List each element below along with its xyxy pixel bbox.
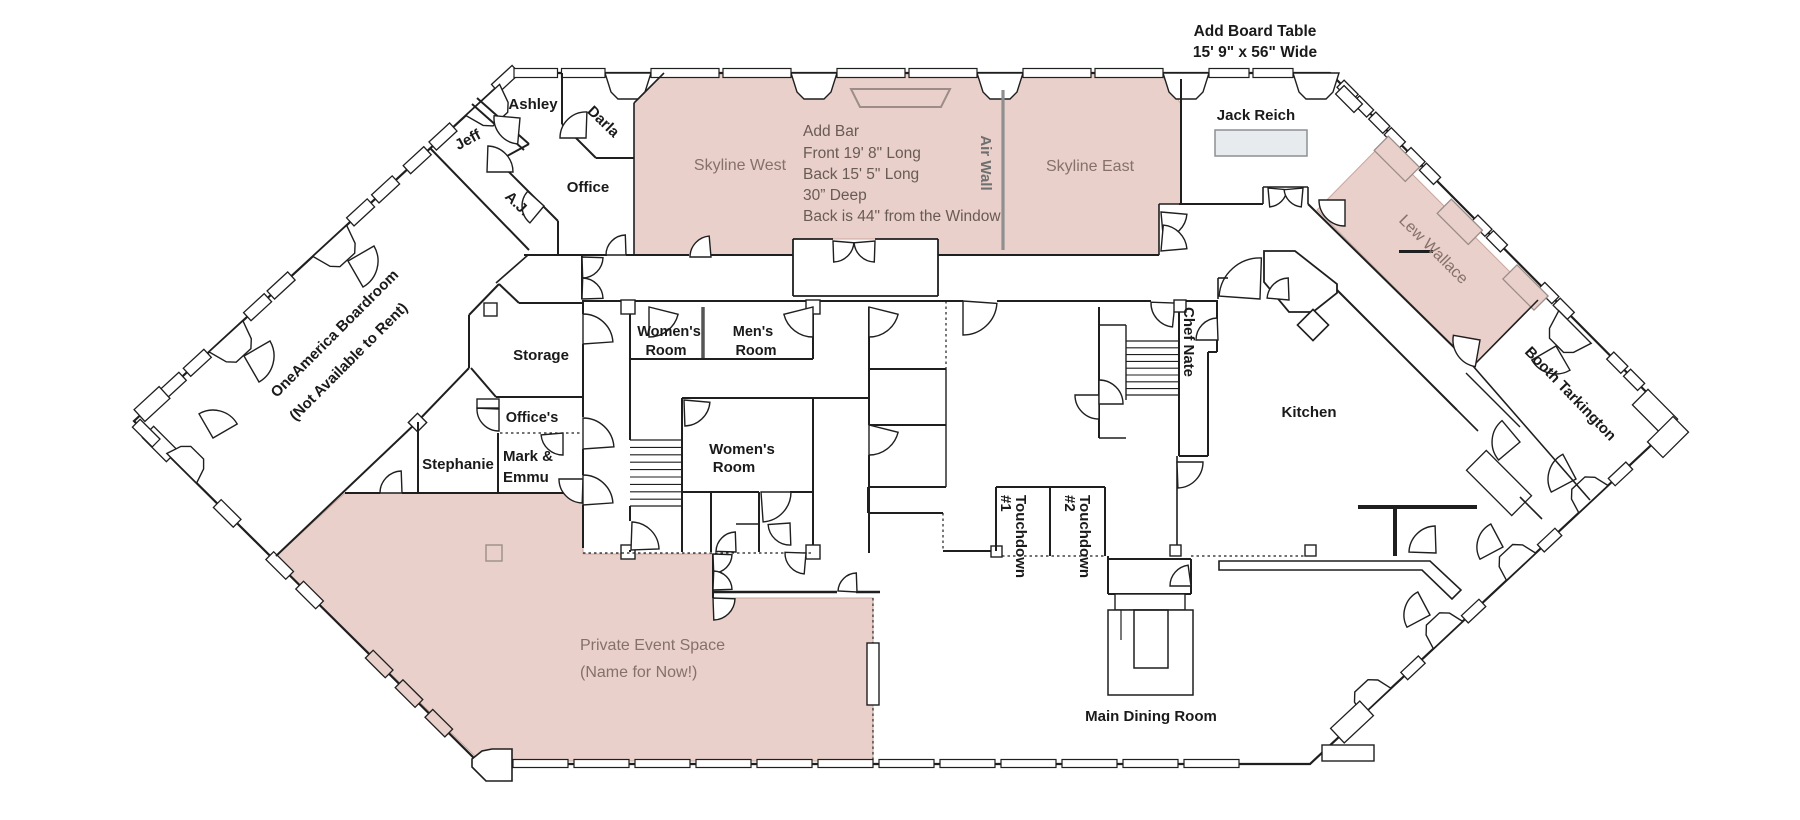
svg-text:Women's: Women's: [709, 441, 775, 458]
svg-text:Office's: Office's: [506, 410, 559, 426]
svg-text:Air Wall: Air Wall: [977, 135, 994, 190]
svg-text:Emmu: Emmu: [503, 469, 549, 486]
svg-text:Add Board Table: Add Board Table: [1194, 23, 1317, 40]
svg-text:15' 9" x 56" Wide: 15' 9" x 56" Wide: [1193, 44, 1318, 61]
svg-text:Women's: Women's: [637, 324, 701, 340]
svg-text:#1: #1: [997, 495, 1014, 512]
svg-text:#2: #2: [1061, 495, 1078, 512]
svg-text:Men's: Men's: [733, 324, 774, 340]
svg-text:Ashley: Ashley: [508, 96, 558, 113]
svg-text:Kitchen: Kitchen: [1281, 404, 1336, 421]
svg-text:Stephanie: Stephanie: [422, 456, 494, 473]
svg-text:Add Bar: Add Bar: [803, 123, 859, 140]
svg-text:Jack Reich: Jack Reich: [1217, 107, 1295, 124]
svg-text:Mark &: Mark &: [503, 448, 553, 465]
svg-text:Private Event Space: Private Event Space: [580, 637, 725, 654]
svg-text:Chef Nate: Chef Nate: [1180, 307, 1197, 377]
svg-text:Storage: Storage: [513, 347, 569, 364]
svg-text:Back is 44" from the Window: Back is 44" from the Window: [803, 208, 1001, 225]
svg-text:Room: Room: [713, 459, 756, 476]
svg-text:Skyline West: Skyline West: [694, 157, 787, 174]
svg-text:Main Dining Room: Main Dining Room: [1085, 708, 1217, 725]
svg-text:30” Deep: 30” Deep: [803, 187, 867, 204]
svg-text:Office: Office: [567, 179, 610, 196]
svg-text:Back 15' 5" Long: Back 15' 5" Long: [803, 166, 919, 183]
svg-text:(Name for Now!): (Name for Now!): [580, 664, 697, 681]
svg-text:Skyline East: Skyline East: [1046, 158, 1135, 175]
svg-text:Front 19' 8" Long: Front 19' 8" Long: [803, 145, 921, 162]
svg-text:Room: Room: [645, 343, 686, 359]
svg-text:Room: Room: [735, 343, 776, 359]
